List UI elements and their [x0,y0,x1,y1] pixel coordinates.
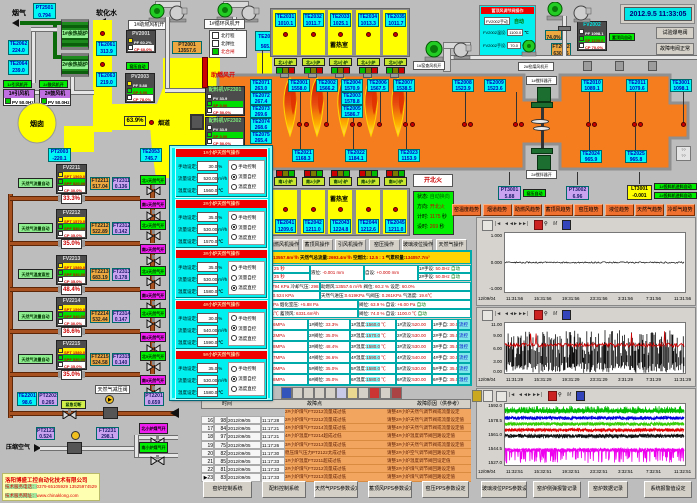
svg-text:烟囱: 烟囱 [30,119,44,128]
